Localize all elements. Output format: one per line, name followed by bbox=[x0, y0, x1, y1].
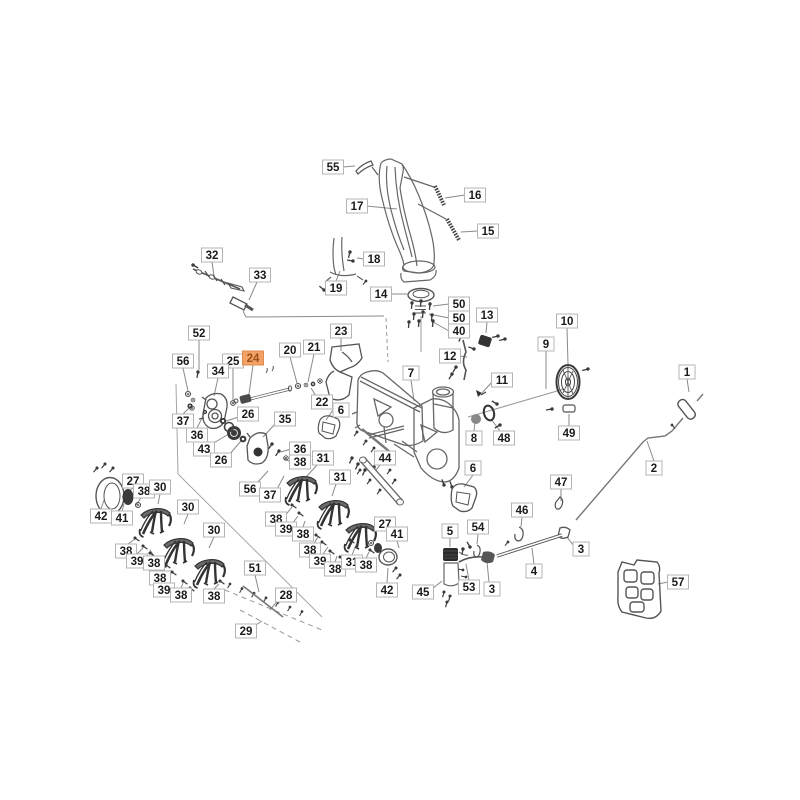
svg-text:38: 38 bbox=[208, 591, 221, 603]
svg-text:30: 30 bbox=[182, 502, 195, 514]
svg-text:54: 54 bbox=[472, 522, 485, 534]
svg-text:38: 38 bbox=[175, 590, 188, 602]
svg-text:41: 41 bbox=[391, 529, 404, 541]
svg-text:44: 44 bbox=[379, 453, 392, 465]
svg-text:37: 37 bbox=[264, 490, 277, 502]
svg-text:56: 56 bbox=[177, 356, 190, 368]
svg-text:38: 38 bbox=[297, 529, 310, 541]
svg-text:56: 56 bbox=[244, 484, 257, 496]
svg-text:39: 39 bbox=[131, 556, 144, 568]
svg-text:32: 32 bbox=[206, 250, 219, 262]
svg-text:16: 16 bbox=[469, 190, 482, 202]
svg-text:13: 13 bbox=[481, 310, 494, 322]
svg-text:38: 38 bbox=[148, 558, 161, 570]
svg-text:51: 51 bbox=[249, 563, 262, 575]
svg-text:15: 15 bbox=[482, 226, 495, 238]
svg-text:6: 6 bbox=[338, 405, 344, 417]
svg-text:24: 24 bbox=[247, 353, 260, 365]
svg-text:33: 33 bbox=[254, 270, 267, 282]
svg-text:50: 50 bbox=[453, 313, 466, 325]
svg-text:12: 12 bbox=[444, 351, 457, 363]
svg-text:38: 38 bbox=[360, 560, 373, 572]
svg-text:10: 10 bbox=[561, 316, 574, 328]
svg-text:20: 20 bbox=[284, 345, 297, 357]
svg-text:8: 8 bbox=[471, 433, 478, 445]
svg-text:38: 38 bbox=[138, 486, 151, 498]
svg-text:7: 7 bbox=[408, 368, 414, 380]
svg-text:4: 4 bbox=[531, 566, 538, 578]
svg-text:30: 30 bbox=[154, 482, 167, 494]
svg-text:14: 14 bbox=[375, 289, 388, 301]
svg-text:26: 26 bbox=[215, 455, 228, 467]
svg-text:47: 47 bbox=[555, 477, 568, 489]
svg-text:52: 52 bbox=[193, 328, 206, 340]
svg-text:45: 45 bbox=[417, 587, 430, 599]
svg-text:11: 11 bbox=[496, 375, 509, 387]
svg-text:18: 18 bbox=[368, 254, 381, 266]
svg-text:26: 26 bbox=[242, 409, 255, 421]
svg-text:5: 5 bbox=[447, 526, 454, 538]
svg-text:9: 9 bbox=[543, 339, 549, 351]
svg-text:41: 41 bbox=[116, 513, 129, 525]
svg-text:57: 57 bbox=[672, 577, 685, 589]
svg-text:36: 36 bbox=[191, 430, 204, 442]
svg-text:55: 55 bbox=[327, 162, 340, 174]
svg-text:49: 49 bbox=[563, 428, 576, 440]
svg-text:40: 40 bbox=[453, 326, 466, 338]
svg-text:39: 39 bbox=[158, 585, 171, 597]
svg-text:35: 35 bbox=[279, 414, 292, 426]
svg-text:3: 3 bbox=[578, 544, 584, 556]
svg-text:42: 42 bbox=[381, 585, 394, 597]
svg-text:19: 19 bbox=[330, 283, 343, 295]
svg-text:30: 30 bbox=[208, 525, 221, 537]
svg-text:48: 48 bbox=[498, 433, 511, 445]
svg-text:38: 38 bbox=[294, 457, 307, 469]
svg-text:36: 36 bbox=[294, 444, 307, 456]
svg-text:39: 39 bbox=[280, 524, 293, 536]
svg-text:43: 43 bbox=[198, 444, 211, 456]
svg-text:31: 31 bbox=[334, 472, 347, 484]
svg-text:46: 46 bbox=[516, 505, 529, 517]
svg-text:53: 53 bbox=[463, 582, 476, 594]
svg-text:50: 50 bbox=[453, 299, 466, 311]
svg-text:38: 38 bbox=[329, 564, 342, 576]
svg-text:22: 22 bbox=[316, 397, 329, 409]
svg-text:6: 6 bbox=[470, 463, 476, 475]
svg-text:28: 28 bbox=[280, 590, 293, 602]
svg-text:17: 17 bbox=[351, 201, 364, 213]
svg-text:31: 31 bbox=[317, 453, 330, 465]
svg-text:3: 3 bbox=[489, 584, 495, 596]
svg-text:29: 29 bbox=[240, 626, 253, 638]
svg-text:42: 42 bbox=[95, 511, 108, 523]
svg-text:2: 2 bbox=[651, 463, 657, 475]
svg-text:21: 21 bbox=[308, 342, 321, 354]
svg-text:37: 37 bbox=[177, 416, 190, 428]
svg-text:23: 23 bbox=[335, 326, 348, 338]
svg-text:34: 34 bbox=[212, 366, 225, 378]
svg-text:1: 1 bbox=[684, 367, 691, 379]
